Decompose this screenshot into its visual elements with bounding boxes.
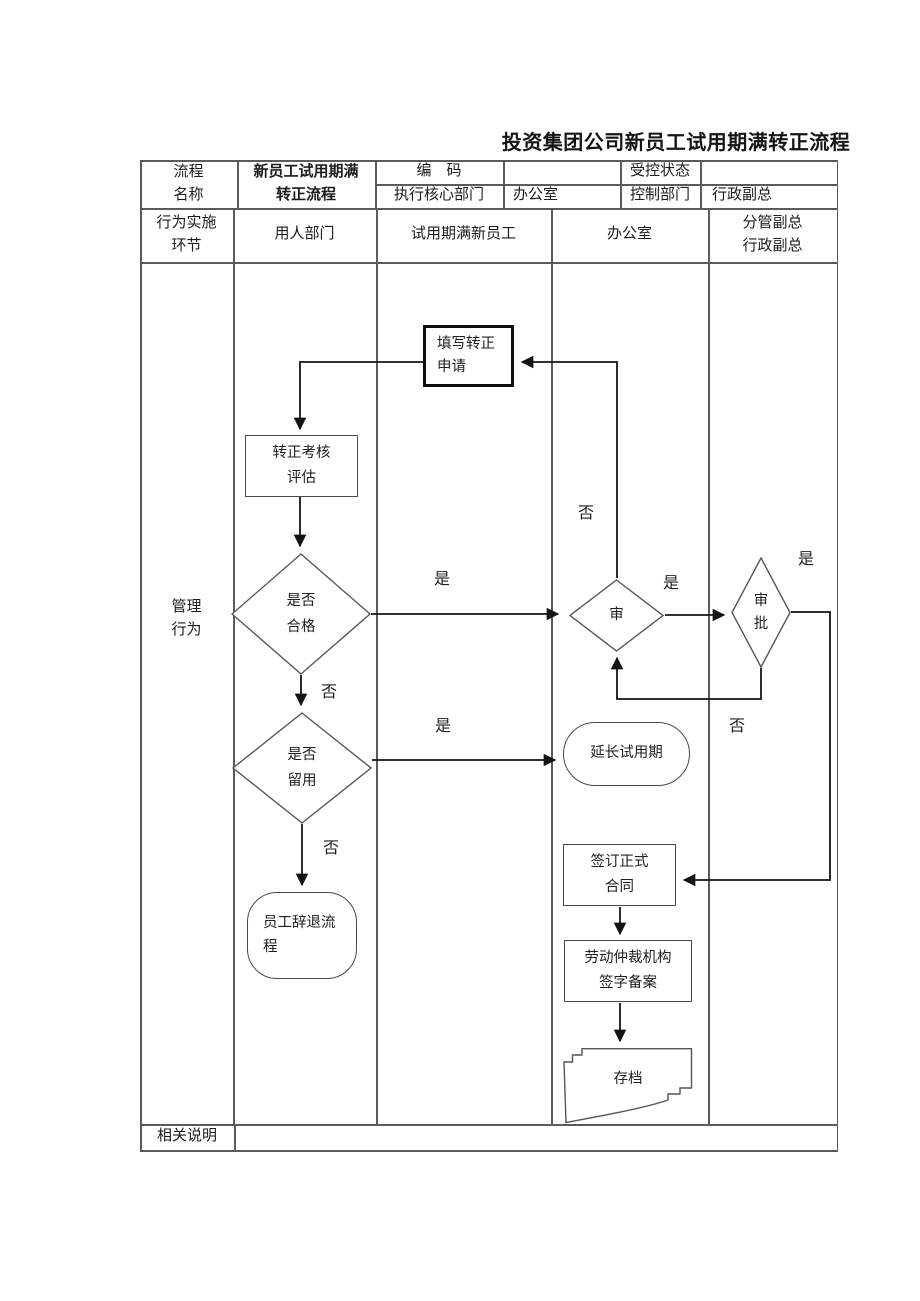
table-border-line bbox=[837, 160, 839, 1151]
qualified-diamond: 是否 合格 bbox=[231, 553, 371, 675]
approve-diamond: 审 批 bbox=[731, 557, 791, 668]
page-title: 投资集团公司新员工试用期满转正流程 bbox=[471, 126, 881, 154]
code-label-cell: 编 码 bbox=[375, 160, 503, 184]
table-border-line bbox=[234, 1124, 236, 1150]
controlled-status-label-cell: 受控状态 bbox=[620, 160, 700, 184]
evaluation-box: 转正考核 评估 bbox=[245, 435, 358, 497]
table-border-line bbox=[140, 262, 838, 264]
arrow-apply-to-evaluate bbox=[300, 362, 424, 429]
branch-label-no-retain: 否 bbox=[321, 841, 341, 857]
qualified-diamond-label: 是否 合格 bbox=[231, 553, 371, 675]
exec-dept-value-cell: 办公室 bbox=[503, 184, 620, 208]
column-header-stage: 行为实施 环节 bbox=[140, 208, 233, 262]
column-header-hiring-dept: 用人部门 bbox=[233, 208, 376, 262]
extend-probation-shape: 延长试用期 bbox=[563, 722, 690, 786]
table-border-line bbox=[140, 160, 142, 1151]
archive-doc-label: 存档 bbox=[563, 1048, 693, 1107]
branch-label-yes-approve: 是 bbox=[796, 552, 816, 568]
retain-diamond-label: 是否 留用 bbox=[232, 712, 372, 824]
branch-label-no-approve: 否 bbox=[727, 719, 747, 735]
arrow-review-no-to-apply bbox=[522, 362, 617, 578]
arbitration-box: 劳动仲裁机构 签字备案 bbox=[564, 940, 692, 1002]
approve-diamond-label: 审 批 bbox=[731, 557, 791, 668]
retain-diamond: 是否 留用 bbox=[232, 712, 372, 824]
exec-dept-label-cell: 执行核心部门 bbox=[375, 184, 503, 208]
control-dept-value-cell: 行政副总 bbox=[700, 184, 837, 208]
branch-label-yes-qualified: 是 bbox=[432, 572, 452, 588]
table-border-line bbox=[708, 208, 710, 1124]
column-header-office: 办公室 bbox=[551, 208, 708, 262]
table-border-line bbox=[140, 1124, 838, 1126]
branch-label-yes-review: 是 bbox=[661, 576, 681, 592]
branch-label-no-review: 否 bbox=[576, 506, 596, 522]
dismiss-process-shape: 员工辞退流 程 bbox=[247, 892, 357, 979]
fill-application-box: 填写转正 申请 bbox=[423, 325, 514, 387]
table-border-line bbox=[551, 208, 553, 1124]
controlled-status-value-cell bbox=[700, 160, 837, 184]
column-header-deputy-gm: 分管副总 行政副总 bbox=[708, 208, 837, 262]
branch-label-no-qualified: 否 bbox=[319, 685, 339, 701]
code-value-cell bbox=[503, 160, 620, 184]
archive-doc-shape: 存档 bbox=[563, 1048, 693, 1124]
column-header-new-employee: 试用期满新员工 bbox=[376, 208, 551, 262]
review-diamond-label: 审 bbox=[569, 579, 664, 652]
control-dept-label-cell: 控制部门 bbox=[620, 184, 700, 208]
management-behavior-label: 管理 行为 bbox=[140, 588, 233, 650]
sign-contract-box: 签订正式 合同 bbox=[563, 844, 676, 906]
review-diamond: 审 bbox=[569, 579, 664, 652]
branch-label-yes-retain: 是 bbox=[433, 719, 453, 735]
process-name-label-cell: 流程 名称 bbox=[140, 160, 237, 208]
table-border-line bbox=[140, 1150, 838, 1152]
process-name-value-cell: 新员工试用期满 转正流程 bbox=[237, 160, 375, 208]
notes-label: 相关说明 bbox=[140, 1124, 234, 1150]
table-border-line bbox=[376, 208, 378, 1124]
